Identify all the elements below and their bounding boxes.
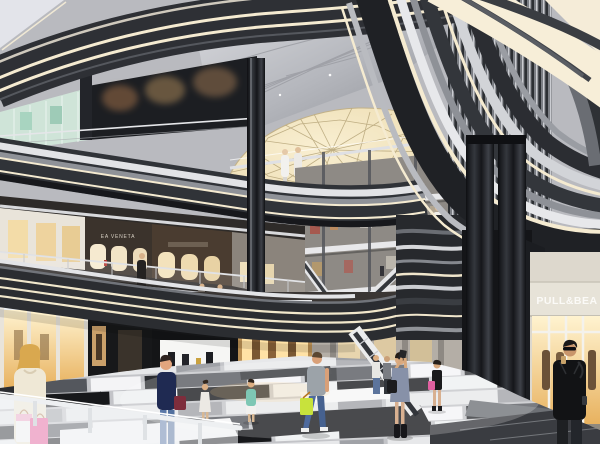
atrium-column	[247, 58, 265, 308]
bottom-margin	[0, 444, 600, 451]
mall-rendering-canvas: EA VENETA	[0, 0, 600, 451]
store-sign-pullbear: PULL&BEA	[536, 295, 597, 307]
wavy-fascia	[396, 215, 472, 340]
store-sign-bottega: EA VENETA	[101, 234, 136, 240]
mall-rendering: EA VENETA	[0, 0, 600, 451]
